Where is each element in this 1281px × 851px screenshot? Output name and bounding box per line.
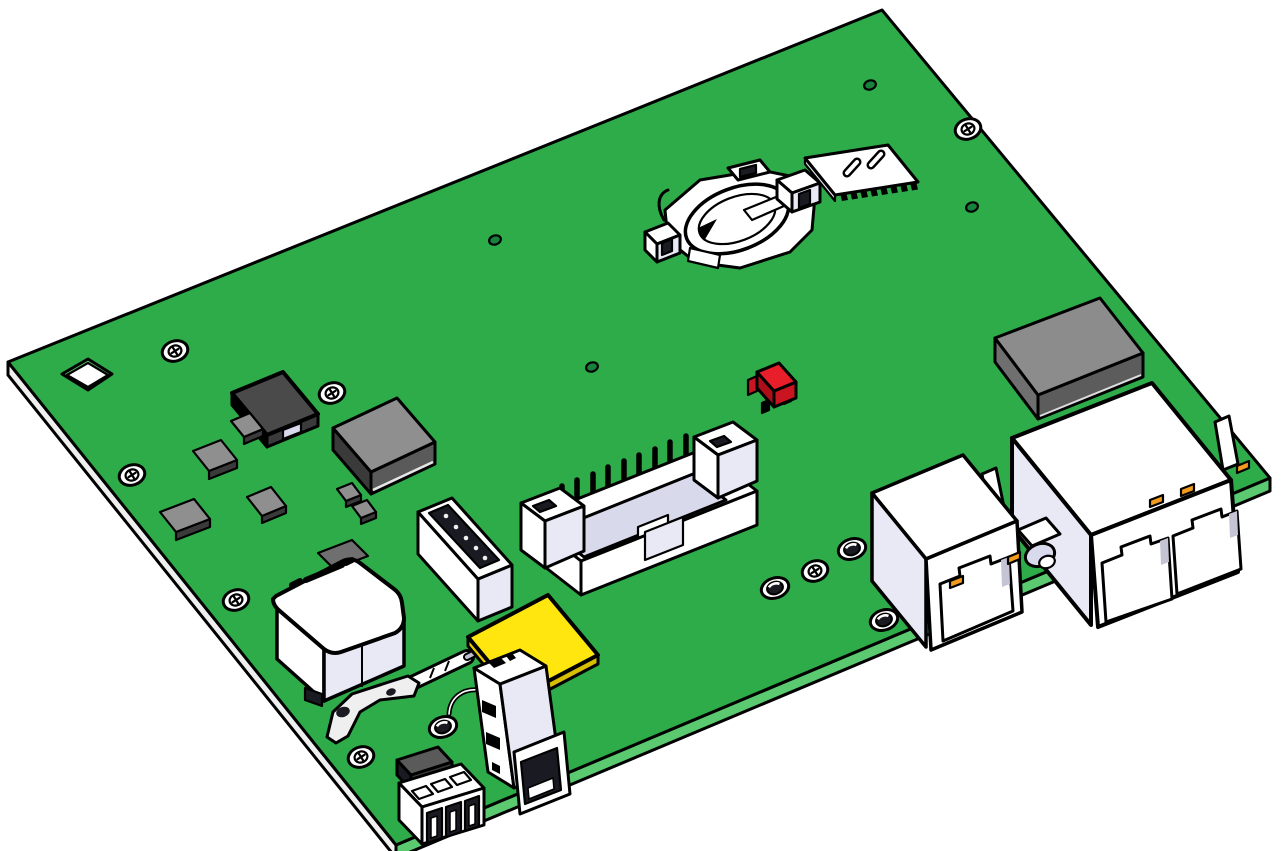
- pcb-render: 3D CAD rendering of a green printed circ…: [0, 0, 1281, 851]
- pin: [450, 810, 456, 832]
- holder-end-block-left: [645, 223, 680, 262]
- block-slot: [799, 190, 810, 208]
- block-slot: [662, 239, 672, 255]
- port-shadow: [1229, 511, 1238, 538]
- pin: [431, 816, 437, 838]
- header-end-tower-west: [521, 488, 584, 568]
- pin: [469, 804, 475, 826]
- port-shadow: [1160, 538, 1169, 565]
- header-end-tower-east: [694, 422, 757, 498]
- holder-end-block-right: [777, 170, 820, 212]
- pcb-scene: 3D CAD rendering of a green printed circ…: [0, 0, 1281, 851]
